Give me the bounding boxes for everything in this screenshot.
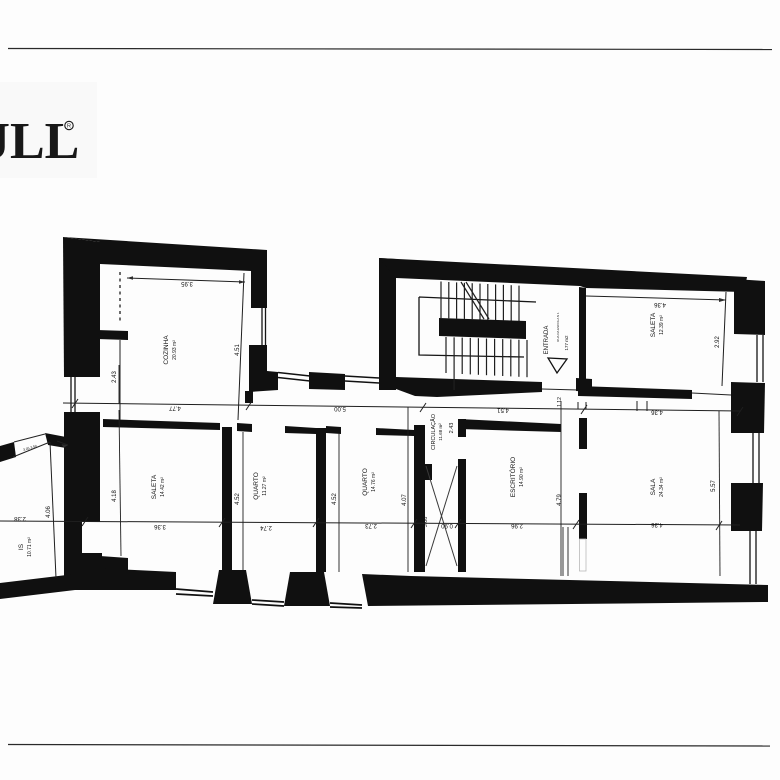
svg-text:3.36: 3.36 <box>154 523 166 529</box>
svg-text:CIRCULAÇÃO: CIRCULAÇÃO <box>430 413 437 450</box>
svg-text:4.79: 4.79 <box>557 494 563 506</box>
svg-text:177 m2: 177 m2 <box>564 335 569 351</box>
svg-text:SALA: SALA <box>650 478 657 495</box>
svg-text:QUARTO: QUARTO <box>253 472 260 500</box>
svg-text:RUA DA ESCOLA N 1: RUA DA ESCOLA N 1 <box>556 312 560 342</box>
svg-text:2.74: 2.74 <box>260 524 272 530</box>
svg-text:COZINHA: COZINHA <box>163 335 170 365</box>
svg-text:ESCRITÓRIO: ESCRITÓRIO <box>508 457 517 497</box>
svg-text:IS: IS <box>18 543 25 550</box>
svg-text:4.36: 4.36 <box>651 409 663 415</box>
svg-text:4.52: 4.52 <box>332 493 338 505</box>
svg-text:2.92: 2.92 <box>715 336 721 348</box>
svg-text:4.77: 4.77 <box>169 405 181 411</box>
svg-text:2.96: 2.96 <box>511 522 523 528</box>
svg-text:2.73: 2.73 <box>365 522 377 528</box>
svg-text:QUARTO: QUARTO <box>362 468 369 496</box>
svg-text:24.34 m²: 24.34 m² <box>659 477 665 497</box>
svg-text:4.36: 4.36 <box>654 301 666 307</box>
svg-text:11.68 m²: 11.68 m² <box>438 423 443 441</box>
svg-text:2.38: 2.38 <box>14 515 26 521</box>
svg-text:10.71 m²: 10.71 m² <box>27 537 33 557</box>
svg-text:2.43: 2.43 <box>112 371 118 383</box>
svg-text:4.52: 4.52 <box>235 493 241 505</box>
svg-text:SALETA: SALETA <box>151 474 158 499</box>
svg-text:0.90: 0.90 <box>441 522 453 528</box>
svg-text:11.27 m²: 11.27 m² <box>262 476 268 496</box>
svg-text:2.43: 2.43 <box>449 423 455 434</box>
svg-text:3.08: 3.08 <box>423 517 429 528</box>
svg-text:12.39 m²: 12.39 m² <box>659 315 665 335</box>
svg-text:SALETA: SALETA <box>650 312 657 337</box>
svg-text:R: R <box>67 124 71 130</box>
svg-text:5.57: 5.57 <box>711 480 717 492</box>
svg-text:4.51: 4.51 <box>497 407 509 413</box>
svg-text:14.90 m²: 14.90 m² <box>519 467 525 487</box>
svg-text:4.36: 4.36 <box>651 521 663 527</box>
svg-text:4.07: 4.07 <box>402 494 408 506</box>
svg-text:3.95: 3.95 <box>181 280 193 286</box>
svg-text:4.18: 4.18 <box>112 490 118 502</box>
svg-text:20.93 m²: 20.93 m² <box>172 340 178 360</box>
svg-text:ENTRADA: ENTRADA <box>544 326 550 355</box>
svg-text:14.76 m²: 14.76 m² <box>371 472 377 492</box>
svg-text:4.06: 4.06 <box>46 506 52 518</box>
svg-text:14.42 m²: 14.42 m² <box>160 477 166 497</box>
svg-text:1.12: 1.12 <box>557 397 563 407</box>
svg-text:5.00: 5.00 <box>334 405 346 411</box>
svg-text:4.51: 4.51 <box>235 344 241 356</box>
